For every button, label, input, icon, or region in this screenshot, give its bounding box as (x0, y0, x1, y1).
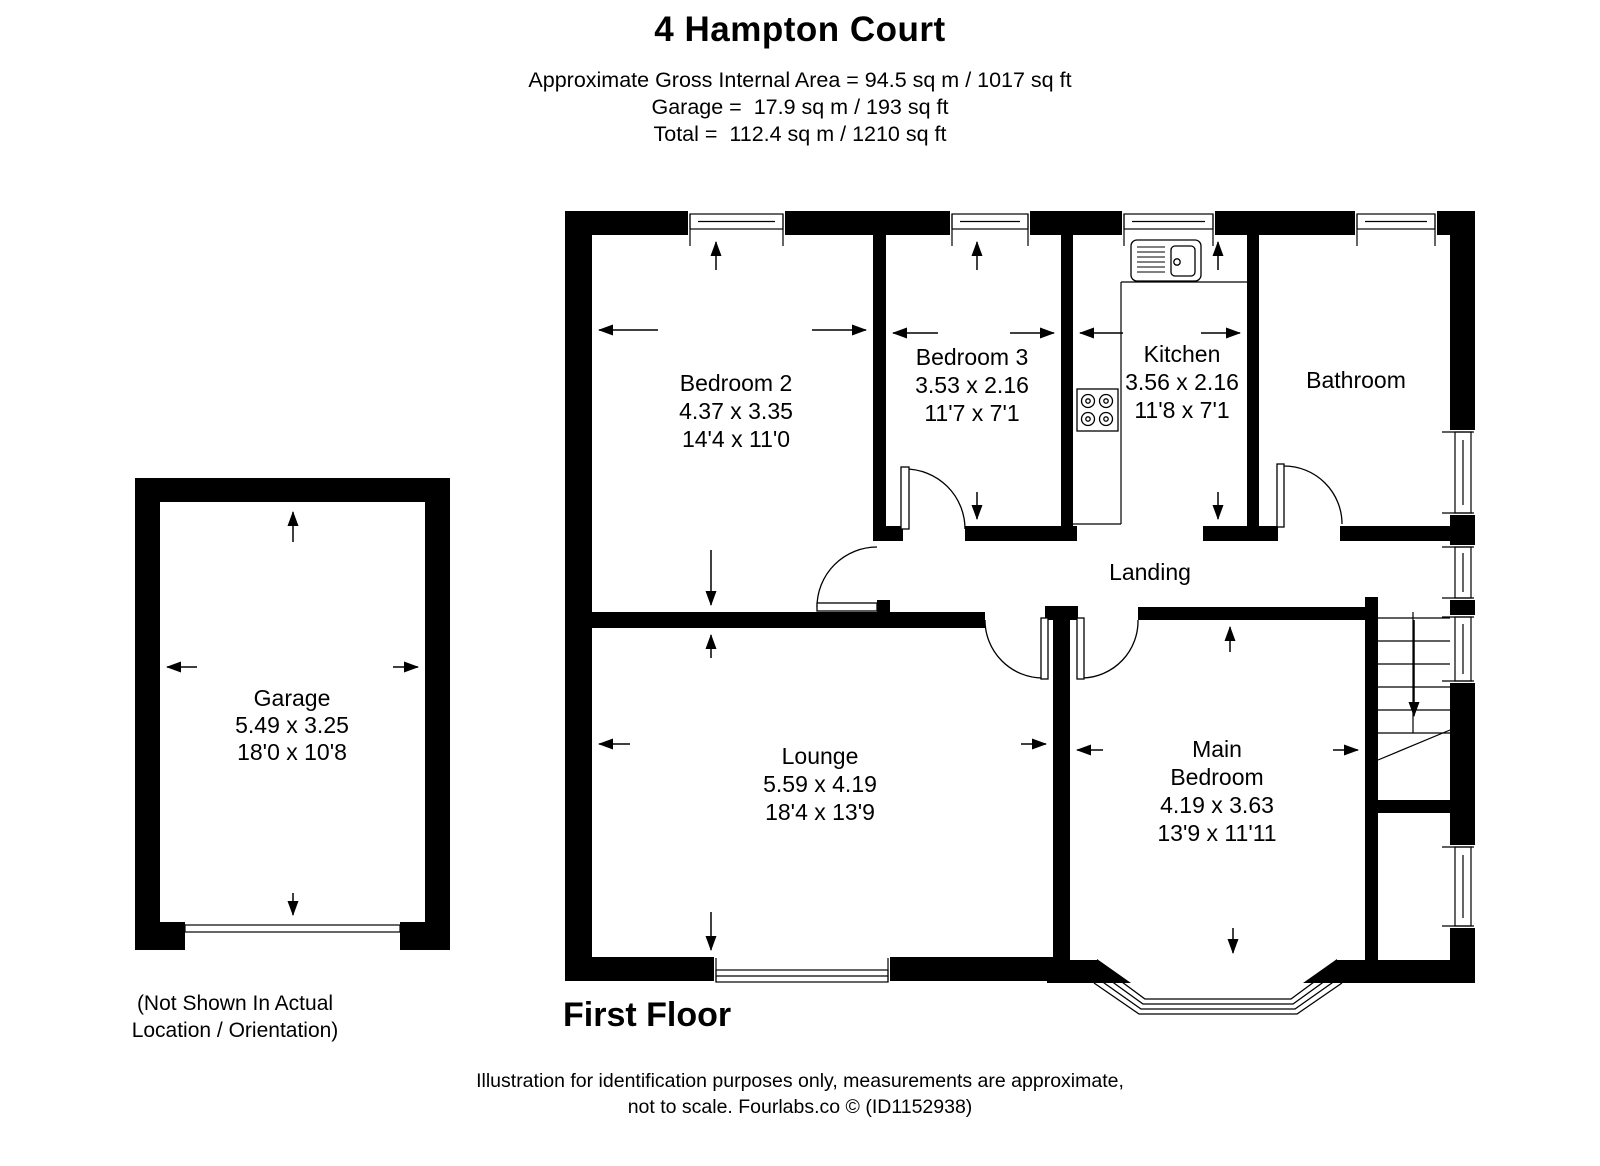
window-lounge (714, 957, 890, 982)
window-bathroom-side (1441, 430, 1475, 515)
wall-segment (1053, 620, 1070, 981)
label-lounge-imperial: 18'4 x 13'9 (765, 799, 875, 825)
wall-segment (1450, 211, 1475, 430)
label-kitchen-metric: 3.56 x 2.16 (1125, 369, 1239, 395)
wall-segment (1030, 211, 1122, 235)
wall-segment (135, 478, 160, 950)
window-landing-side (1441, 545, 1475, 600)
label-lounge-metric: 5.59 x 4.19 (763, 771, 877, 797)
wall-segment (565, 957, 714, 981)
label-bedroom3-imperial: 11'7 x 7'1 (924, 400, 1019, 426)
wall-segment (565, 612, 985, 628)
kitchen-hob-icon (1077, 389, 1118, 431)
wall-segment (873, 526, 903, 541)
walls (135, 211, 1475, 983)
door-lounge (985, 618, 1048, 679)
windows (185, 211, 1475, 982)
window-bedroom3 (950, 211, 1030, 247)
wall-segment (1215, 211, 1355, 235)
label-bedroom3-name: Bedroom 3 (916, 344, 1029, 370)
floor-label: First Floor (563, 996, 731, 1035)
bay-wall-wedge (1097, 959, 1131, 983)
label-garage-name: Garage (254, 685, 331, 711)
window-bathroom-top (1355, 211, 1437, 247)
kitchen-sink-icon (1131, 240, 1201, 281)
door-main-bedroom (1077, 618, 1138, 679)
floorplan-page: 4 Hampton Court Approximate Gross Intern… (0, 0, 1600, 1166)
label-bedroom2-imperial: 14'4 x 11'0 (682, 426, 790, 452)
label-lounge-name: Lounge (782, 743, 859, 769)
label-bedroom2-name: Bedroom 2 (680, 370, 793, 396)
wall-segment (1047, 960, 1097, 983)
window-stairs-side (1441, 615, 1475, 683)
wall-segment (135, 478, 450, 502)
doors (817, 464, 1342, 679)
door-bedroom2 (817, 547, 877, 611)
wall-segment (1365, 800, 1475, 813)
label-kitchen-name: Kitchen (1144, 341, 1221, 367)
door-bathroom (1277, 464, 1342, 527)
wall-segment (890, 957, 1070, 981)
wall-segment (1365, 597, 1378, 983)
label-bedroom2-metric: 4.37 x 3.35 (679, 398, 793, 424)
window-bedroom2 (688, 211, 785, 247)
wall-segment (965, 526, 1077, 541)
wall-segment (1138, 607, 1378, 620)
label-mainbed-imperial: 13'9 x 11'11 (1157, 820, 1276, 846)
wall-segment (1340, 526, 1452, 541)
wall-segment (1450, 600, 1475, 615)
garage-door (185, 925, 400, 932)
label-mainbed-name2: Bedroom (1170, 764, 1263, 790)
label-bedroom3-metric: 3.53 x 2.16 (915, 372, 1029, 398)
garage-note-line2: Location / Orientation) (100, 1017, 370, 1044)
wall-segment (785, 211, 950, 235)
wall-segment (1203, 526, 1278, 541)
label-bathroom-name: Bathroom (1306, 367, 1406, 393)
label-mainbed-name1: Main (1192, 736, 1242, 762)
disclaimer-line2: not to scale. Fourlabs.co © (ID1152938) (0, 1094, 1600, 1120)
wall-segment (1337, 960, 1475, 983)
door-bedroom3 (901, 467, 965, 529)
wall-segment (135, 922, 185, 950)
wall-segment (1450, 683, 1475, 845)
label-landing-name: Landing (1109, 559, 1191, 585)
window-lower-right-side (1441, 845, 1475, 928)
disclaimer: Illustration for identification purposes… (0, 1068, 1600, 1120)
wall-segment (425, 478, 450, 950)
disclaimer-line1: Illustration for identification purposes… (0, 1068, 1600, 1094)
label-mainbed-metric: 4.19 x 3.63 (1160, 792, 1274, 818)
bay-wall-wedge (1303, 959, 1337, 983)
wall-segment (1247, 235, 1259, 526)
wall-segment (565, 211, 592, 981)
wall-segment (1045, 606, 1078, 620)
bay-window (1094, 968, 1342, 1014)
garage-note: (Not Shown In Actual Location / Orientat… (100, 990, 370, 1044)
room-labels: Bedroom 2 4.37 x 3.35 14'4 x 11'0 Bedroo… (235, 341, 1406, 846)
wall-segment (873, 235, 886, 526)
label-garage-imperial: 18'0 x 10'8 (237, 739, 347, 765)
label-garage-metric: 5.49 x 3.25 (235, 712, 349, 738)
label-kitchen-imperial: 11'8 x 7'1 (1134, 397, 1229, 423)
wall-segment (400, 922, 450, 950)
stairs-icon (1378, 612, 1450, 760)
garage-note-line1: (Not Shown In Actual (100, 990, 370, 1017)
wall-segment (1061, 235, 1073, 526)
wall-segment (1450, 515, 1475, 545)
